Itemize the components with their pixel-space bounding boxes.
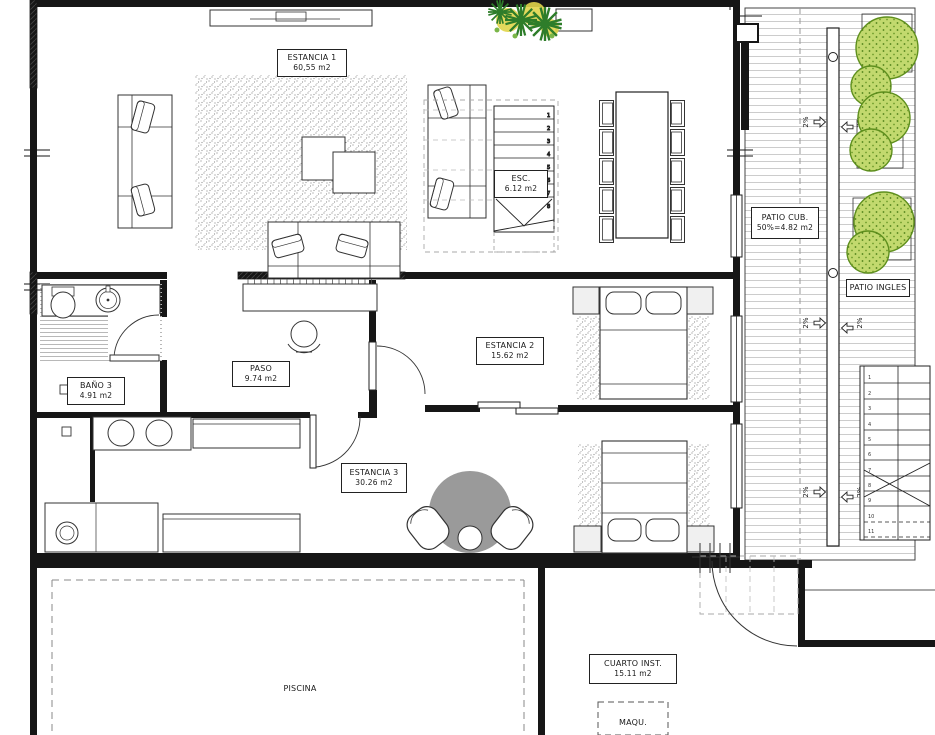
door-leaf (369, 342, 376, 390)
burner-icon (108, 420, 134, 446)
hatched-wall (30, 0, 37, 88)
nightstand (574, 526, 601, 552)
svg-text:7: 7 (868, 468, 871, 474)
door-swing-clear (108, 314, 160, 360)
room-label-cuarto-inst: CUARTO INST. 15.11 m2 (589, 654, 677, 684)
nightstand (573, 287, 599, 314)
desk-chair (288, 321, 320, 353)
floor-drain (62, 427, 71, 436)
sideboard (210, 10, 372, 26)
toilet-icon (51, 292, 75, 318)
pool (52, 580, 524, 735)
room-area: 60,55 m2 (293, 63, 331, 72)
floor-plan-drawing: 2% 2% 2% 2% 2% 2% (0, 0, 935, 735)
slope-label: 2% (802, 486, 810, 497)
drain-channel (827, 28, 839, 546)
room-name: PASO (250, 364, 272, 374)
sliding-door (478, 402, 558, 414)
bed-rug (578, 444, 601, 526)
room-name: ESTANCIA 2 (486, 341, 535, 351)
room-area: 15.62 m2 (491, 351, 529, 360)
pillow (646, 519, 679, 541)
pillow (646, 292, 681, 314)
room-name: PATIO INGLES (850, 283, 907, 293)
bed-rug (686, 316, 710, 400)
slope-label: 2% (802, 116, 810, 127)
burner-icon (146, 420, 172, 446)
svg-text:6: 6 (868, 452, 871, 458)
side-table (458, 526, 482, 550)
right-wall-windows (731, 195, 742, 508)
svg-text:9: 9 (868, 498, 871, 504)
room-label-piscina: PISCINA (270, 682, 330, 696)
pillow (608, 519, 641, 541)
sink-icon (56, 522, 78, 544)
counter (193, 419, 300, 448)
door-leaf (110, 355, 159, 361)
pillow (606, 292, 641, 314)
island-counter (163, 514, 300, 552)
room-label-estancia2: ESTANCIA 2 15.62 m2 (476, 337, 544, 365)
slope-label: 2% (856, 317, 864, 328)
sofa (428, 85, 486, 218)
svg-text:8: 8 (868, 483, 871, 489)
svg-text:3: 3 (547, 139, 550, 145)
svg-text:4: 4 (868, 422, 871, 428)
room-area: 6.12 m2 (505, 184, 538, 193)
svg-text:5: 5 (868, 437, 871, 443)
svg-text:1: 1 (868, 375, 871, 381)
pool-edge-dashed (52, 580, 524, 735)
lounge-corner (402, 471, 537, 554)
room-label-estancia1: ESTANCIA 1 60,55 m2 (277, 49, 347, 77)
svg-text:8: 8 (547, 204, 550, 210)
room-name: ESTANCIA 3 (350, 468, 399, 478)
patio-column (736, 24, 758, 42)
svg-text:4: 4 (547, 152, 550, 158)
room-label-esc: ESC. 6.12 m2 (494, 170, 548, 198)
dining-table (616, 92, 668, 238)
room-label-bano3: BAÑO 3 4.91 m2 (67, 377, 125, 405)
svg-text:1: 1 (547, 113, 550, 119)
sofa (268, 222, 400, 278)
bed-rug (576, 316, 600, 400)
svg-text:10: 10 (868, 514, 874, 520)
nightstand (687, 287, 713, 314)
room-label-patio-cub: PATIO CUB. 50%=4.82 m2 (751, 207, 819, 239)
room-area: 9.74 m2 (245, 374, 278, 383)
room-name: ESC. (511, 174, 530, 184)
svg-text:2: 2 (868, 391, 871, 397)
room-label-paso: PASO 9.74 m2 (232, 361, 290, 387)
room-name: BAÑO 3 (80, 381, 112, 391)
bedroom-upper (573, 287, 713, 400)
sofa (118, 95, 172, 228)
desk (243, 284, 377, 311)
door-arc (377, 346, 425, 394)
room-label-maqu: MAQU. (598, 715, 668, 731)
porch (598, 543, 798, 735)
room-name: MAQU. (619, 718, 647, 728)
svg-text:11: 11 (868, 529, 874, 535)
svg-text:2: 2 (547, 126, 550, 132)
room-name: PISCINA (283, 684, 316, 694)
door-arc (712, 561, 797, 646)
svg-text:3: 3 (868, 406, 871, 412)
dining-set (600, 92, 685, 243)
room-name: ESTANCIA 1 (288, 53, 337, 63)
patio-staircase: 1 2 3 4 5 6 7 8 9 10 11 (860, 366, 930, 540)
door-arc (316, 416, 360, 467)
floor-plan-canvas: 2% 2% 2% 2% 2% 2% (0, 0, 935, 735)
room-label-estancia3: ESTANCIA 3 30.26 m2 (341, 463, 407, 493)
room-name: PATIO CUB. (762, 213, 809, 223)
room-area: 30.26 m2 (355, 478, 393, 487)
slope-label: 2% (802, 317, 810, 328)
hatched-wall (30, 272, 37, 314)
room-name: CUARTO INST. (604, 659, 662, 669)
door-leaf (310, 415, 316, 468)
bed-rug (687, 444, 710, 526)
room-label-patio-ingles: PATIO INGLES (846, 279, 910, 297)
bedroom-lower (574, 441, 714, 553)
room-area: 4.91 m2 (80, 391, 113, 400)
room-area: 50%=4.82 m2 (757, 223, 813, 232)
room-area: 15.11 m2 (614, 669, 652, 678)
